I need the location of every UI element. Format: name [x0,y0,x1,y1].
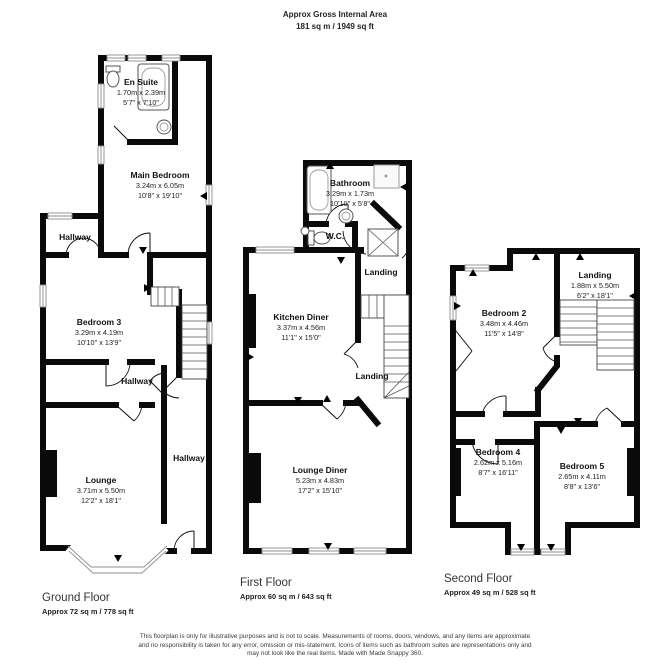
floorplan-page: Approx Gross Internal Area 181 sq m / 19… [0,0,670,668]
first-floor-plan [243,162,409,554]
room-name: Lounge Diner [293,465,348,476]
disclaimer-line-2: and no responsibility is taken for any e… [35,642,635,651]
room-dim-imperial: 11'5" x 14'8" [480,329,528,338]
room-dim-imperial: 11'1" x 15'0" [273,333,328,342]
room-dim-imperial: 8'7" x 16'11" [474,468,522,477]
room-label-landing-2: Landing 1.88m x 5.50m 6'2" x 18'1" [571,270,619,300]
room-label-bedroom-5: Bedroom 5 2.65m x 4.11m 8'8" x 13'6" [558,461,606,491]
second-floor-title: Second Floor Approx 49 sq m / 528 sq ft [444,573,536,597]
room-dim-imperial: 5'7" x 7'10" [117,98,165,107]
room-name: Kitchen Diner [273,312,328,323]
ground-floor-title: Ground Floor Approx 72 sq m / 778 sq ft [42,592,134,616]
room-dim-metric: 3.29m x 4.19m [75,328,123,337]
room-dim-metric: 3.48m x 4.46m [480,319,528,328]
room-dim-metric: 2.62m x 5.16m [474,458,522,467]
room-label-lounge: Lounge 3.71m x 5.50m 12'2" x 18'1" [77,475,125,505]
shower-icon [368,229,398,256]
first-floor-title: First Floor Approx 60 sq m / 643 sq ft [240,577,332,601]
room-label-main-bedroom: Main Bedroom 3.24m x 6.05m 10'8" x 19'10… [130,170,189,200]
floor-area: Approx 49 sq m / 528 sq ft [444,588,536,597]
hand-basin-icon [301,227,309,235]
room-dim-imperial: 10'8" x 19'10" [130,191,189,200]
floor-area: Approx 72 sq m / 778 sq ft [42,607,134,616]
room-name: En Suite [117,77,165,88]
room-name: Landing [355,371,388,382]
room-label-en-suite: En Suite 1.70m x 2.39m 5'7" x 7'10" [117,77,165,107]
room-label-wc: W.C. [326,231,344,242]
room-dim-metric: 3.24m x 6.05m [130,181,189,190]
disclaimer-line-3: may not look like the real items. Made w… [35,650,635,659]
room-label-hallway-middle: Hallway [121,376,153,387]
room-dim-imperial: 8'8" x 13'6" [558,482,606,491]
room-dim-metric: 3.71m x 5.50m [77,486,125,495]
room-dim-imperial: 6'2" x 18'1" [571,291,619,300]
room-dim-metric: 2.65m x 4.11m [558,472,606,481]
room-label-bedroom-3: Bedroom 3 3.29m x 4.19m 10'10" x 13'9" [75,317,123,347]
room-name: Landing [364,267,397,278]
room-name: W.C. [326,231,344,242]
room-dim-metric: 3.29m x 1.73m [326,189,374,198]
ground-floor-plan [40,55,212,573]
stairs [560,300,634,370]
chimney-breast [40,450,57,497]
room-name: Hallway [121,376,153,387]
room-name: Lounge [77,475,125,486]
sink-icon [339,209,353,223]
room-name: Bathroom [326,178,374,189]
rooflight-icon [374,165,399,188]
room-label-hallway-entrance: Hallway [173,453,205,464]
room-label-bathroom: Bathroom 3.29m x 1.73m 10'10" x 5'8" [326,178,374,208]
room-label-hallway-upper: Hallway [59,232,91,243]
room-label-landing-upper: Landing [364,267,397,278]
room-name: Bedroom 3 [75,317,123,328]
room-name: Bedroom 4 [474,447,522,458]
chimney-breast [627,448,637,496]
room-name: Main Bedroom [130,170,189,181]
disclaimer-line-1: This floorplan is only for illustrative … [35,633,635,642]
disclaimer: This floorplan is only for illustrative … [35,633,635,659]
room-name: Hallway [173,453,205,464]
ground-floor-walls [43,58,209,551]
fireplace [243,453,264,503]
room-dim-imperial: 12'2" x 18'1" [77,496,125,505]
room-dim-metric: 1.88m x 5.50m [571,281,619,290]
room-label-bedroom-4: Bedroom 4 2.62m x 5.16m 8'7" x 16'11" [474,447,522,477]
floor-area: Approx 60 sq m / 643 sq ft [240,592,332,601]
chimney-breast [243,294,256,348]
sink-icon [157,120,171,134]
room-dim-metric: 1.70m x 2.39m [117,88,165,97]
chimney-breast [450,448,461,496]
room-name: Bedroom 2 [480,308,528,319]
floor-name: Ground Floor [42,592,134,604]
room-dim-imperial: 10'10" x 5'8" [326,199,374,208]
room-name: Hallway [59,232,91,243]
room-dim-imperial: 10'10" x 13'9" [75,338,123,347]
floor-name: First Floor [240,577,332,589]
room-label-lounge-diner: Lounge Diner 5.23m x 4.83m 17'2" x 15'10… [293,465,348,495]
room-dim-metric: 3.37m x 4.56m [273,323,328,332]
room-label-kitchen-diner: Kitchen Diner 3.37m x 4.56m 11'1" x 15'0… [273,312,328,342]
stairs [361,295,409,398]
room-name: Landing [571,270,619,281]
room-dim-imperial: 17'2" x 15'10" [293,486,348,495]
room-label-landing-lower: Landing [355,371,388,382]
room-label-bedroom-2: Bedroom 2 3.48m x 4.46m 11'5" x 14'8" [480,308,528,338]
room-dim-metric: 5.23m x 4.83m [293,476,348,485]
room-name: Bedroom 5 [558,461,606,472]
floor-name: Second Floor [444,573,536,585]
